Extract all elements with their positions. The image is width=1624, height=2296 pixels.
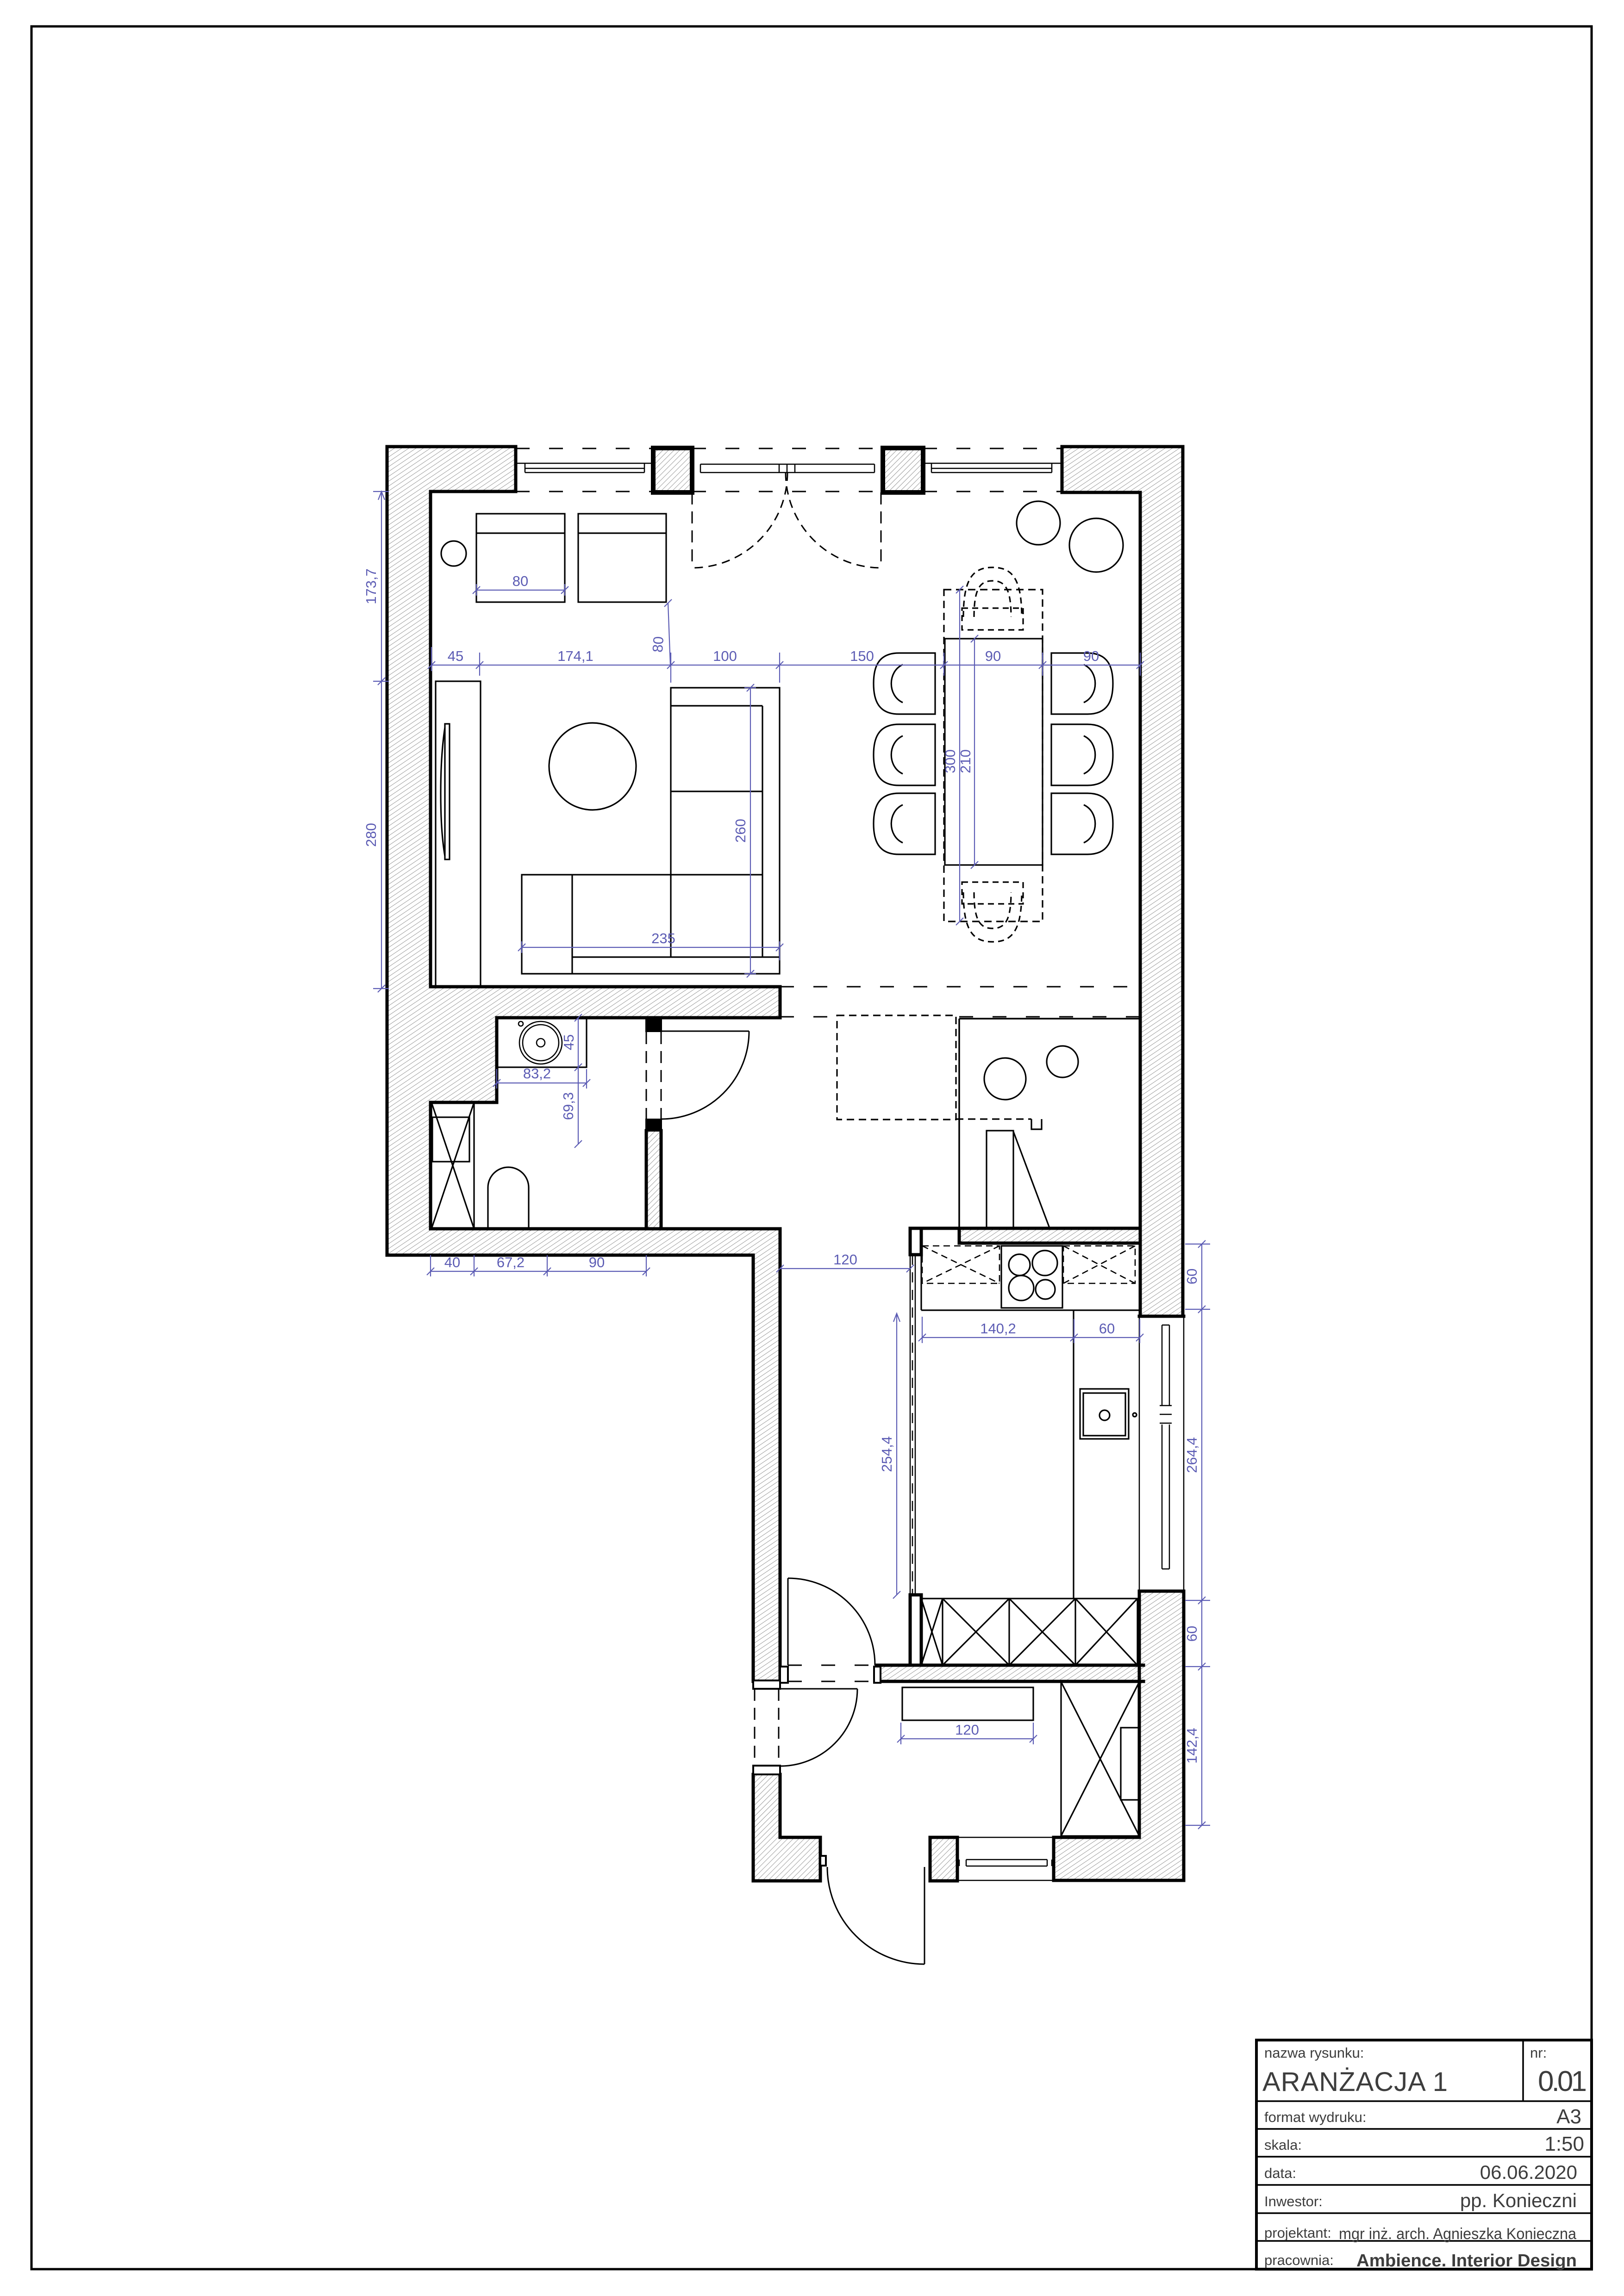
svg-text:A3: A3: [1556, 2105, 1581, 2128]
svg-text:projektant:: projektant:: [1264, 2225, 1331, 2241]
svg-text:173,7: 173,7: [363, 568, 379, 604]
svg-text:80: 80: [512, 573, 528, 589]
svg-text:pracownia:: pracownia:: [1264, 2252, 1334, 2268]
svg-text:60: 60: [1184, 1269, 1200, 1284]
svg-text:nazwa rysunku:: nazwa rysunku:: [1264, 2045, 1364, 2061]
svg-text:45: 45: [448, 648, 463, 664]
svg-text:142,4: 142,4: [1184, 1728, 1200, 1764]
svg-text:90: 90: [589, 1254, 605, 1270]
svg-text:45: 45: [561, 1034, 577, 1050]
svg-text:pp. Konieczni: pp. Konieczni: [1460, 2190, 1577, 2211]
svg-text:150: 150: [850, 648, 874, 664]
svg-text:60: 60: [1099, 1320, 1115, 1337]
svg-text:Ambience. Interior Design: Ambience. Interior Design: [1356, 2251, 1577, 2271]
svg-text:90: 90: [1083, 648, 1099, 664]
svg-text:06.06.2020: 06.06.2020: [1480, 2161, 1577, 2183]
svg-text:300: 300: [942, 749, 958, 773]
svg-text:260: 260: [732, 819, 749, 843]
svg-text:40: 40: [444, 1254, 460, 1270]
svg-text:80: 80: [650, 636, 667, 653]
svg-text:264,4: 264,4: [1184, 1437, 1200, 1473]
svg-text:60: 60: [1184, 1626, 1200, 1642]
svg-text:mgr inż. arch. Agnieszka Konie: mgr inż. arch. Agnieszka Konieczna: [1339, 2225, 1576, 2243]
svg-text:140,2: 140,2: [980, 1320, 1016, 1337]
svg-text:90: 90: [985, 648, 1001, 664]
svg-text:120: 120: [955, 1722, 979, 1738]
svg-text:83,2: 83,2: [523, 1065, 551, 1082]
svg-text:nr:: nr:: [1530, 2045, 1547, 2061]
svg-text:data:: data:: [1264, 2165, 1296, 2181]
svg-text:Inwestor:: Inwestor:: [1264, 2193, 1323, 2209]
svg-text:format wydruku:: format wydruku:: [1264, 2109, 1367, 2125]
svg-text:254,4: 254,4: [879, 1436, 895, 1472]
svg-text:0.01: 0.01: [1538, 2066, 1587, 2097]
svg-text:100: 100: [713, 648, 737, 664]
svg-text:ARANŻACJA 1: ARANŻACJA 1: [1262, 2067, 1448, 2097]
svg-text:67,2: 67,2: [497, 1254, 525, 1270]
svg-text:174,1: 174,1: [557, 648, 593, 664]
svg-text:skala:: skala:: [1264, 2137, 1302, 2153]
svg-text:210: 210: [957, 749, 974, 773]
svg-text:69,3: 69,3: [560, 1092, 576, 1120]
svg-text:280: 280: [363, 823, 379, 847]
svg-text:235: 235: [651, 930, 675, 946]
svg-text:1:50: 1:50: [1544, 2133, 1584, 2155]
svg-text:120: 120: [833, 1251, 857, 1268]
